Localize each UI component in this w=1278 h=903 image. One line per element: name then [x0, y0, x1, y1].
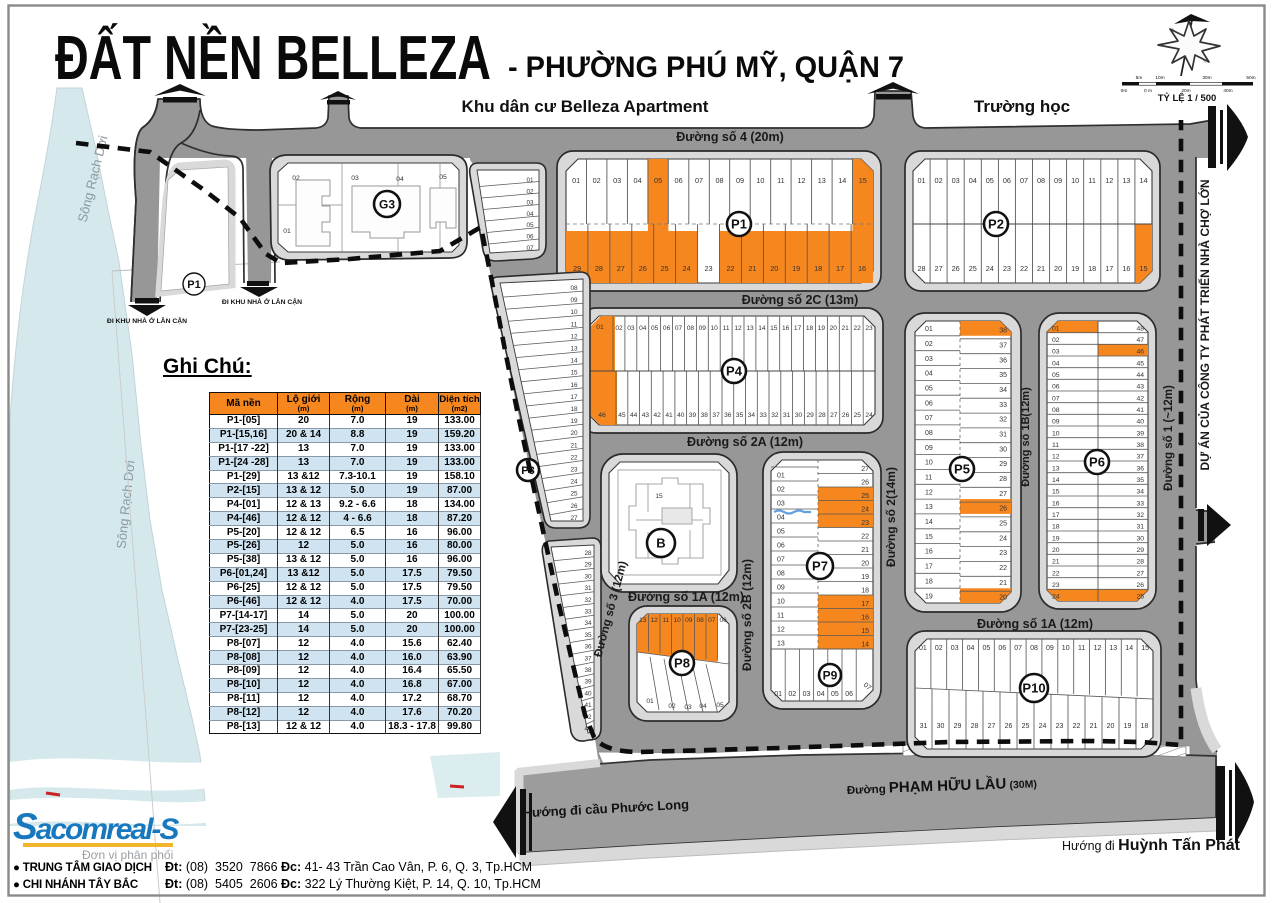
svg-text:06: 06	[845, 691, 853, 698]
svg-text:11: 11	[662, 617, 669, 624]
svg-text:19: 19	[792, 264, 800, 273]
svg-text:40m: 40m	[1223, 88, 1232, 94]
svg-text:03: 03	[526, 200, 534, 207]
svg-text:30: 30	[795, 412, 803, 419]
svg-text:34: 34	[748, 412, 756, 419]
svg-text:12: 12	[734, 325, 742, 332]
svg-text:01: 01	[774, 691, 782, 698]
svg-text:10: 10	[1062, 645, 1070, 652]
svg-text:01: 01	[917, 176, 925, 185]
svg-text:18: 18	[814, 264, 822, 273]
svg-text:23: 23	[704, 264, 712, 273]
svg-text:29: 29	[584, 562, 592, 569]
svg-text:04: 04	[634, 176, 642, 185]
svg-text:38: 38	[1136, 442, 1144, 449]
svg-text:34: 34	[584, 620, 592, 627]
svg-text:23: 23	[1052, 582, 1060, 589]
svg-text:Đường số 1 (~12m): Đường số 1 (~12m)	[1163, 385, 1175, 491]
svg-text:33: 33	[584, 609, 592, 616]
svg-text:25: 25	[854, 412, 862, 419]
svg-text:03: 03	[627, 325, 635, 332]
svg-text:Đường số 1B(12m): Đường số 1B(12m)	[1020, 387, 1032, 487]
svg-text:Đường số 4 (20m): Đường số 4 (20m)	[676, 130, 784, 144]
svg-text:23: 23	[1056, 723, 1064, 730]
svg-text:17: 17	[1052, 512, 1060, 519]
svg-text:13: 13	[639, 617, 647, 624]
svg-text:23: 23	[1003, 264, 1011, 273]
svg-text:17: 17	[836, 264, 844, 273]
svg-text:41: 41	[1136, 407, 1144, 414]
svg-text:25: 25	[661, 264, 669, 273]
svg-text:01: 01	[919, 645, 927, 652]
svg-text:21: 21	[1052, 559, 1060, 566]
svg-text:06: 06	[925, 400, 933, 407]
svg-text:13: 13	[1109, 645, 1117, 652]
svg-text:27: 27	[988, 723, 996, 730]
svg-text:06: 06	[675, 176, 683, 185]
svg-text:Đường số 2A (12m): Đường số 2A (12m)	[687, 435, 803, 449]
svg-text:35: 35	[584, 632, 592, 639]
svg-text:14: 14	[1139, 176, 1147, 185]
svg-text:42: 42	[1136, 395, 1144, 402]
svg-text:27: 27	[1136, 570, 1144, 577]
svg-text:06: 06	[777, 543, 785, 550]
svg-text:05: 05	[831, 691, 839, 698]
svg-text:19: 19	[570, 418, 578, 425]
svg-text:06: 06	[720, 617, 728, 624]
svg-text:27: 27	[830, 412, 838, 419]
svg-text:05: 05	[716, 702, 724, 709]
svg-text:20: 20	[570, 430, 578, 437]
svg-text:20: 20	[830, 325, 838, 332]
svg-text:19: 19	[1071, 264, 1079, 273]
svg-text:28: 28	[917, 264, 925, 273]
svg-text:01: 01	[572, 176, 580, 185]
svg-text:08: 08	[777, 571, 785, 578]
svg-text:14: 14	[570, 358, 578, 365]
svg-text:09: 09	[699, 325, 707, 332]
svg-text:32: 32	[771, 412, 779, 419]
svg-text:36: 36	[1136, 465, 1144, 472]
svg-text:05: 05	[925, 386, 933, 393]
svg-text:07: 07	[1014, 645, 1022, 652]
svg-text:10: 10	[925, 460, 933, 467]
svg-text:02: 02	[668, 703, 676, 710]
svg-text:07: 07	[526, 245, 534, 252]
svg-text:01: 01	[596, 324, 604, 331]
svg-text:15: 15	[859, 176, 867, 185]
svg-text:02: 02	[1052, 337, 1060, 344]
svg-text:28: 28	[971, 723, 979, 730]
svg-text:17: 17	[570, 394, 578, 401]
svg-text:08: 08	[570, 285, 578, 292]
svg-text:03: 03	[952, 176, 960, 185]
svg-text:18: 18	[570, 406, 578, 413]
svg-text:09: 09	[925, 445, 933, 452]
svg-text:23: 23	[861, 520, 869, 527]
svg-text:08: 08	[697, 617, 705, 624]
svg-text:11: 11	[571, 321, 578, 328]
svg-text:37: 37	[712, 412, 720, 419]
svg-text:DỰ ÁN CỦA CÔNG TY PHÁT TRIỂN: DỰ ÁN CỦA CÔNG TY PHÁT TRIỂN NHÀ CHỢ LỚN	[1197, 179, 1212, 470]
svg-text:21: 21	[1037, 264, 1045, 273]
svg-text:24: 24	[861, 506, 869, 513]
svg-text:26: 26	[842, 412, 850, 419]
svg-text:26: 26	[1005, 723, 1013, 730]
svg-text:11: 11	[1088, 176, 1096, 185]
svg-text:35: 35	[736, 412, 744, 419]
svg-text:50m: 50m	[1246, 75, 1255, 81]
svg-text:25: 25	[1022, 723, 1030, 730]
svg-text:Đường số 2(14m): Đường số 2(14m)	[884, 467, 898, 567]
svg-text:32: 32	[1136, 512, 1144, 519]
svg-text:01: 01	[777, 473, 785, 480]
svg-text:09: 09	[1054, 176, 1062, 185]
svg-text:44: 44	[630, 412, 638, 419]
svg-text:04: 04	[817, 691, 825, 698]
svg-text:Trường học: Trường học	[974, 97, 1070, 116]
svg-text:38: 38	[584, 667, 592, 674]
svg-text:12: 12	[1105, 176, 1113, 185]
svg-text:26: 26	[1136, 582, 1144, 589]
svg-text:06: 06	[998, 645, 1006, 652]
svg-text:09: 09	[777, 585, 785, 592]
svg-text:04: 04	[526, 211, 534, 218]
svg-text:40: 40	[584, 690, 592, 697]
svg-text:02: 02	[292, 175, 300, 182]
svg-text:Đường số 2C (13m): Đường số 2C (13m)	[742, 293, 859, 307]
svg-text:11: 11	[723, 325, 730, 332]
svg-text:01: 01	[526, 177, 534, 184]
svg-text:07: 07	[1052, 395, 1060, 402]
svg-text:P1: P1	[731, 217, 747, 232]
svg-text:07: 07	[695, 176, 703, 185]
svg-text:18: 18	[1052, 524, 1060, 531]
svg-text:Khu dân cư Belleza Apartment: Khu dân cư Belleza Apartment	[462, 97, 709, 116]
svg-text:- PHƯỜNG PHÚ MỸ, QUẬN 7: - PHƯỜNG PHÚ MỸ, QUẬN 7	[508, 50, 904, 84]
svg-text:29: 29	[954, 723, 962, 730]
svg-text:ĐẤT NỀN BELLEZA: ĐẤT NỀN BELLEZA	[55, 24, 491, 93]
svg-text:32: 32	[999, 417, 1007, 424]
svg-text:03: 03	[351, 175, 359, 182]
svg-text:15: 15	[1141, 645, 1149, 652]
svg-text:05: 05	[777, 529, 785, 536]
svg-text:03: 03	[1052, 349, 1060, 356]
svg-text:10: 10	[1071, 176, 1079, 185]
svg-text:08: 08	[715, 176, 723, 185]
svg-text:05: 05	[986, 176, 994, 185]
svg-text:Đường số 1A (12m): Đường số 1A (12m)	[628, 590, 744, 604]
svg-text:20: 20	[861, 560, 869, 567]
svg-text:P4: P4	[726, 364, 743, 379]
svg-text:39: 39	[584, 679, 592, 686]
svg-text:15: 15	[570, 370, 578, 377]
svg-text:16: 16	[858, 264, 866, 273]
svg-text:31: 31	[999, 432, 1007, 439]
svg-text:30m: 30m	[1202, 75, 1211, 81]
svg-text:02: 02	[935, 645, 943, 652]
svg-text:14: 14	[1125, 645, 1133, 652]
svg-text:27: 27	[570, 515, 578, 522]
svg-text:23: 23	[570, 467, 578, 474]
svg-text:02: 02	[777, 487, 785, 494]
svg-text:25: 25	[969, 264, 977, 273]
svg-text:ĐI KHU NHÀ Ở LÂN CẬN: ĐI KHU NHÀ Ở LÂN CẬN	[222, 297, 302, 306]
svg-text:04: 04	[925, 371, 933, 378]
svg-text:04: 04	[777, 515, 785, 522]
svg-text:24: 24	[1052, 594, 1060, 601]
svg-text:24: 24	[570, 479, 578, 486]
svg-text:20: 20	[1052, 547, 1060, 554]
svg-text:06: 06	[1052, 384, 1060, 391]
svg-text:40: 40	[1136, 419, 1144, 426]
svg-text:30: 30	[999, 446, 1007, 453]
svg-text:29: 29	[999, 461, 1007, 468]
svg-text:15: 15	[925, 534, 933, 541]
svg-text:20: 20	[770, 264, 778, 273]
svg-text:48: 48	[1136, 325, 1144, 332]
svg-text:10: 10	[756, 176, 764, 185]
svg-text:26: 26	[861, 479, 869, 486]
svg-text:34: 34	[999, 387, 1007, 394]
svg-text:P7: P7	[812, 559, 828, 574]
svg-text:24: 24	[986, 264, 994, 273]
svg-text:19: 19	[818, 325, 826, 332]
svg-text:33: 33	[760, 412, 768, 419]
svg-text:20: 20	[1054, 264, 1062, 273]
svg-text:11: 11	[925, 475, 932, 482]
svg-text:Hướng đi Huỳnh Tấn Phát: Hướng đi Huỳnh Tấn Phát	[1062, 837, 1241, 854]
svg-text:P2: P2	[988, 217, 1004, 232]
svg-text:P8: P8	[674, 656, 690, 671]
svg-text:14: 14	[925, 519, 933, 526]
svg-text:04: 04	[967, 645, 975, 652]
svg-text:31: 31	[920, 723, 928, 730]
svg-text:21: 21	[842, 325, 850, 332]
svg-text:06: 06	[526, 234, 534, 241]
svg-text:10: 10	[570, 309, 578, 316]
svg-text:02: 02	[526, 188, 534, 195]
svg-text:0 m: 0 m	[1144, 88, 1152, 94]
svg-text:23: 23	[865, 325, 873, 332]
svg-text:13: 13	[1122, 176, 1130, 185]
svg-text:27: 27	[861, 466, 869, 473]
svg-text:G3: G3	[379, 197, 395, 211]
svg-text:05: 05	[651, 325, 659, 332]
svg-text:12: 12	[1052, 454, 1060, 461]
svg-text:07: 07	[675, 325, 683, 332]
svg-text:08: 08	[687, 325, 695, 332]
svg-text:30: 30	[937, 723, 945, 730]
svg-text:03: 03	[613, 176, 621, 185]
svg-text:15: 15	[1052, 489, 1060, 496]
svg-text:P1: P1	[187, 279, 200, 291]
svg-text:03: 03	[925, 356, 933, 363]
svg-text:05: 05	[1052, 372, 1060, 379]
svg-text:07: 07	[777, 557, 785, 564]
svg-text:04: 04	[639, 325, 647, 332]
svg-text:21: 21	[570, 442, 578, 449]
svg-text:46: 46	[598, 412, 606, 419]
svg-text:05: 05	[983, 645, 991, 652]
svg-text:12: 12	[925, 489, 933, 496]
svg-text:37: 37	[999, 342, 1007, 349]
svg-text:14: 14	[758, 325, 766, 332]
svg-text:24: 24	[865, 412, 873, 419]
svg-text:03: 03	[803, 691, 811, 698]
svg-text:44: 44	[1136, 372, 1144, 379]
svg-text:46: 46	[1136, 349, 1144, 356]
svg-text:05: 05	[439, 174, 447, 181]
svg-text:04: 04	[396, 176, 404, 183]
svg-text:45: 45	[618, 412, 626, 419]
svg-text:19: 19	[861, 574, 869, 581]
svg-text:13: 13	[1052, 465, 1060, 472]
svg-text:09: 09	[1046, 645, 1054, 652]
svg-text:24: 24	[999, 535, 1007, 542]
svg-text:43: 43	[642, 412, 650, 419]
svg-text:37: 37	[1136, 454, 1144, 461]
svg-text:15: 15	[1139, 264, 1147, 273]
svg-text:21: 21	[748, 264, 756, 273]
svg-text:12: 12	[1094, 645, 1102, 652]
svg-text:11: 11	[1052, 442, 1059, 449]
svg-text:25: 25	[570, 491, 578, 498]
svg-text:19: 19	[1124, 723, 1132, 730]
svg-text:37: 37	[584, 655, 592, 662]
svg-text:33: 33	[1136, 500, 1144, 507]
svg-text:41: 41	[665, 412, 673, 419]
svg-text:42: 42	[654, 412, 662, 419]
svg-text:22: 22	[999, 565, 1007, 572]
svg-text:11: 11	[777, 176, 785, 185]
svg-text:12: 12	[651, 617, 659, 624]
svg-text:04: 04	[969, 176, 977, 185]
svg-text:13: 13	[777, 641, 785, 648]
svg-text:01: 01	[646, 698, 654, 705]
svg-text:14: 14	[1052, 477, 1060, 484]
svg-text:11: 11	[1078, 645, 1085, 652]
svg-text:25: 25	[1136, 594, 1144, 601]
svg-text:P6: P6	[1089, 455, 1105, 470]
svg-text:12: 12	[570, 333, 578, 340]
svg-text:25: 25	[861, 493, 869, 500]
svg-text:28: 28	[584, 550, 592, 557]
svg-text:18: 18	[861, 587, 869, 594]
svg-text:05: 05	[654, 176, 662, 185]
svg-text:02: 02	[935, 176, 943, 185]
svg-text:11: 11	[777, 613, 784, 620]
svg-text:P10: P10	[1022, 681, 1045, 696]
svg-text:17: 17	[1105, 264, 1113, 273]
svg-text:16: 16	[570, 382, 578, 389]
svg-text:ĐI KHU NHÀ Ở LÂN CẬN: ĐI KHU NHÀ Ở LÂN CẬN	[107, 316, 187, 325]
svg-text:40: 40	[677, 412, 685, 419]
svg-text:22: 22	[1073, 723, 1081, 730]
svg-text:47: 47	[1136, 337, 1144, 344]
svg-text:08: 08	[1030, 645, 1038, 652]
svg-text:02: 02	[925, 341, 933, 348]
svg-text:31: 31	[783, 412, 791, 419]
svg-text:08: 08	[925, 430, 933, 437]
svg-text:27: 27	[999, 491, 1007, 498]
svg-text:26: 26	[999, 506, 1007, 513]
svg-text:28: 28	[1136, 559, 1144, 566]
svg-text:18: 18	[806, 325, 814, 332]
svg-text:P5: P5	[954, 462, 970, 477]
svg-text:06: 06	[663, 325, 671, 332]
svg-text:19: 19	[1052, 535, 1060, 542]
svg-text:09: 09	[570, 297, 578, 304]
svg-text:0m: 0m	[1121, 88, 1128, 94]
svg-text:Đường số 1A (12m): Đường số 1A (12m)	[977, 617, 1093, 631]
svg-text:TỶ LỆ 1 / 500: TỶ LỆ 1 / 500	[1158, 92, 1217, 104]
svg-text:03: 03	[777, 501, 785, 508]
svg-text:03: 03	[684, 704, 692, 711]
svg-text:15: 15	[861, 628, 869, 635]
svg-text:13: 13	[925, 504, 933, 511]
svg-text:20: 20	[999, 595, 1007, 602]
svg-text:22: 22	[861, 533, 869, 540]
svg-text:18: 18	[925, 578, 933, 585]
svg-text:03: 03	[951, 645, 959, 652]
svg-text:29: 29	[1136, 547, 1144, 554]
svg-text:28: 28	[595, 264, 603, 273]
svg-text:10: 10	[777, 599, 785, 606]
svg-text:22: 22	[853, 325, 861, 332]
svg-text:17: 17	[794, 325, 802, 332]
svg-text:09: 09	[1052, 419, 1060, 426]
svg-text:02: 02	[788, 691, 796, 698]
svg-text:36: 36	[584, 644, 592, 651]
svg-text:04: 04	[1052, 360, 1060, 367]
svg-text:19: 19	[925, 593, 933, 600]
svg-text:29: 29	[807, 412, 815, 419]
svg-text:28: 28	[818, 412, 826, 419]
svg-text:18: 18	[1088, 264, 1096, 273]
svg-text:21: 21	[1090, 723, 1098, 730]
svg-text:02: 02	[615, 325, 623, 332]
svg-text:38: 38	[999, 328, 1007, 335]
svg-text:33: 33	[999, 402, 1007, 409]
svg-text:24: 24	[1039, 723, 1047, 730]
svg-text:27: 27	[617, 264, 625, 273]
svg-text:14: 14	[838, 176, 846, 185]
svg-text:36: 36	[999, 357, 1007, 364]
svg-text:22: 22	[570, 454, 578, 461]
svg-text:05: 05	[526, 222, 534, 229]
svg-text:07: 07	[708, 617, 716, 624]
svg-text:38: 38	[701, 412, 709, 419]
svg-text:16: 16	[1122, 264, 1130, 273]
svg-text:22: 22	[1020, 264, 1028, 273]
svg-text:31: 31	[1136, 524, 1144, 531]
svg-text:01: 01	[1052, 325, 1060, 332]
svg-text:36: 36	[724, 412, 732, 419]
svg-text:07: 07	[925, 415, 933, 422]
svg-text:17: 17	[925, 564, 933, 571]
svg-text:32: 32	[584, 597, 592, 604]
svg-text:43: 43	[1136, 384, 1144, 391]
svg-text:10: 10	[711, 325, 719, 332]
svg-text:35: 35	[999, 372, 1007, 379]
svg-text:02: 02	[593, 176, 601, 185]
svg-text:16: 16	[925, 549, 933, 556]
svg-text:27: 27	[935, 264, 943, 273]
svg-text:30: 30	[584, 573, 592, 580]
svg-text:13: 13	[570, 346, 578, 353]
svg-text:25: 25	[999, 521, 1007, 528]
